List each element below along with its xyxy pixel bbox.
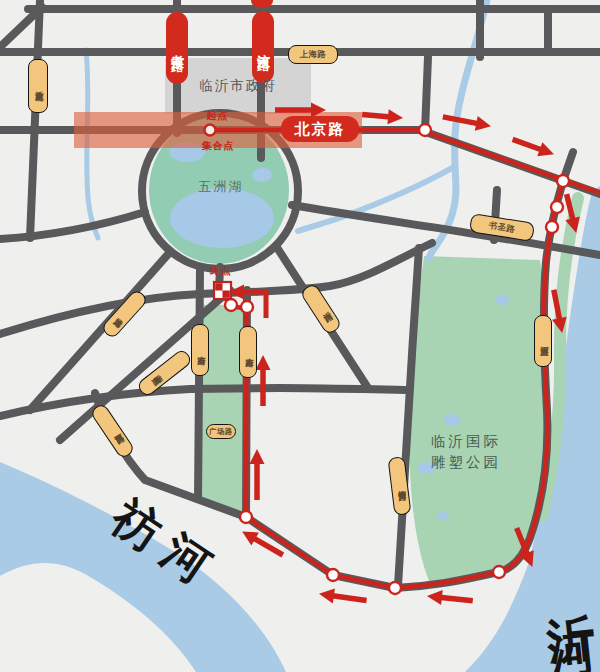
finish-flag-icon	[214, 282, 231, 299]
fuzuo-road-pill: 府左路	[239, 326, 257, 378]
checkpoint	[551, 201, 563, 213]
linyi-route-map: 孝河路 汶河路 北京路 沂蒙北路 上海路 书圣路 滨河大道 府右路 府左路 沂州…	[0, 0, 600, 672]
start-point-dot	[205, 125, 216, 136]
government-label: 临沂市政府	[165, 58, 311, 114]
checkpoint	[493, 566, 505, 578]
start-marker-label: 起点	[190, 110, 245, 122]
wenhe-road-pill-stub	[251, 0, 273, 7]
assembly-marker-label: 集合点	[188, 140, 248, 152]
lake-label: 五洲湖	[181, 179, 261, 195]
checkpoint	[327, 569, 339, 581]
park-label-line2: 雕塑公园	[406, 453, 526, 471]
road-ring-west-spoke	[0, 212, 145, 239]
checkpoint	[546, 221, 558, 233]
checkpoint	[557, 175, 569, 187]
checkpoint	[389, 582, 401, 594]
park-pond	[437, 512, 449, 520]
checkpoint	[240, 511, 252, 523]
fuyou-road-pill: 府右路	[191, 324, 209, 376]
road-connector-ne1	[425, 57, 428, 131]
guangchang-road-pill: 广场路	[206, 424, 236, 439]
park-pond	[495, 295, 509, 305]
checkpoint	[225, 299, 237, 311]
beijing-road-pill: 北京路	[281, 116, 359, 142]
park-label-line1: 临沂国际	[406, 432, 526, 450]
checkpoint	[419, 124, 431, 136]
lake-water-patch	[170, 188, 274, 248]
road-yimengbei	[30, 0, 40, 238]
checkpoint	[241, 301, 253, 313]
finish-marker-label: 终点	[196, 265, 246, 277]
binhe-dadao-road-pill: 滨河大道	[534, 315, 552, 367]
yimengbei-road-pill: 沂蒙北路	[28, 59, 48, 113]
park-pond	[444, 414, 460, 426]
road-fuyou	[198, 268, 200, 499]
